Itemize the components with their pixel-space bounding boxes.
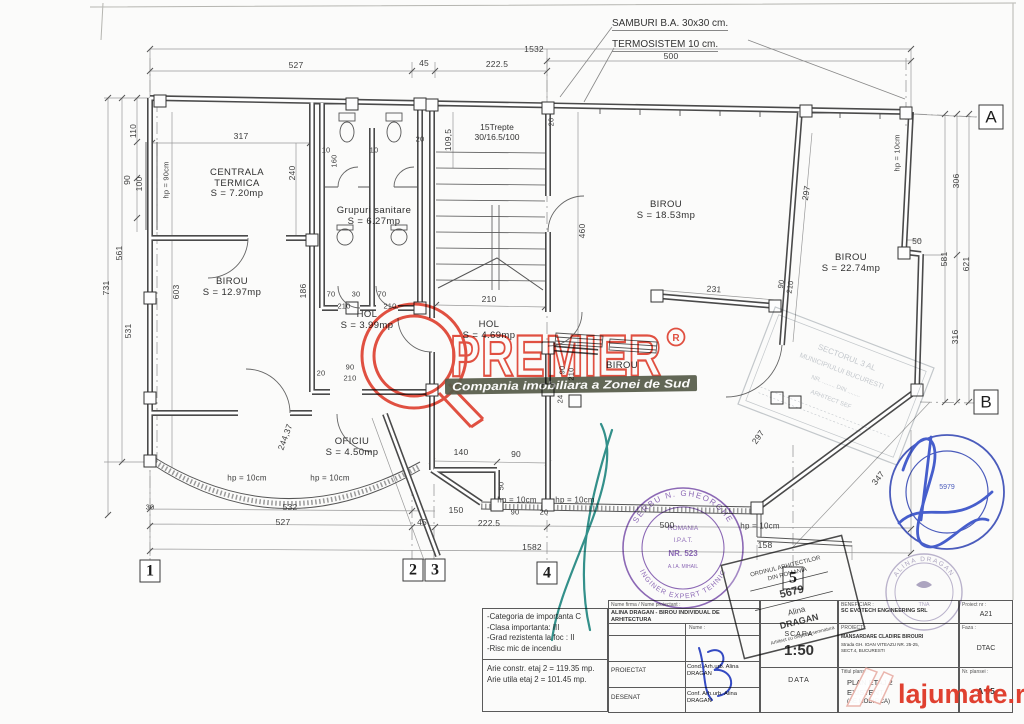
lajumate-logo-icon bbox=[847, 668, 893, 706]
lajumate-watermark: lajumate.ro bbox=[0, 0, 1024, 724]
scanned-drawing-sheet: SAMBURI B.A. 30x30 cm. TERMOSISTEM 10 cm… bbox=[0, 0, 1024, 724]
lajumate-text: lajumate.ro bbox=[898, 679, 1024, 709]
